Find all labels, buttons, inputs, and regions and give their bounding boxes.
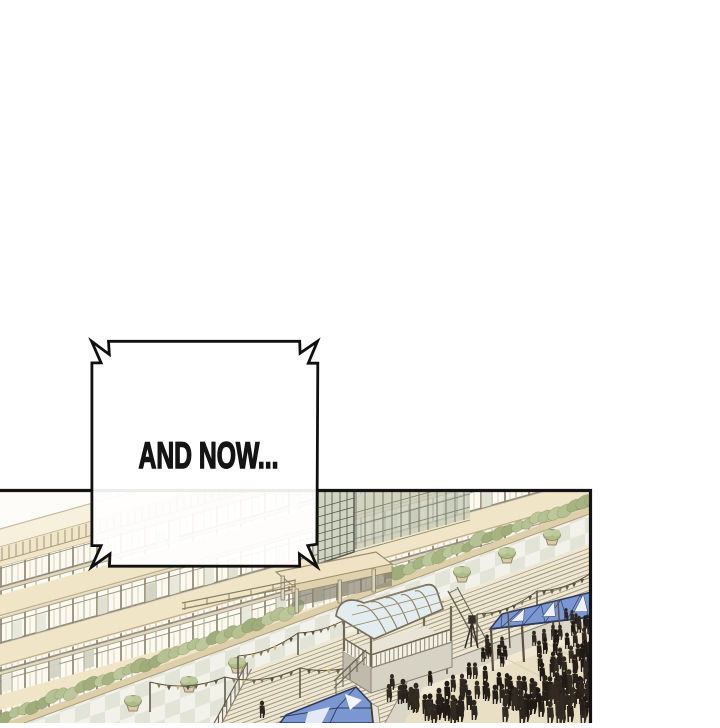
svg-text:AND NOW...: AND NOW... <box>139 435 279 476</box>
